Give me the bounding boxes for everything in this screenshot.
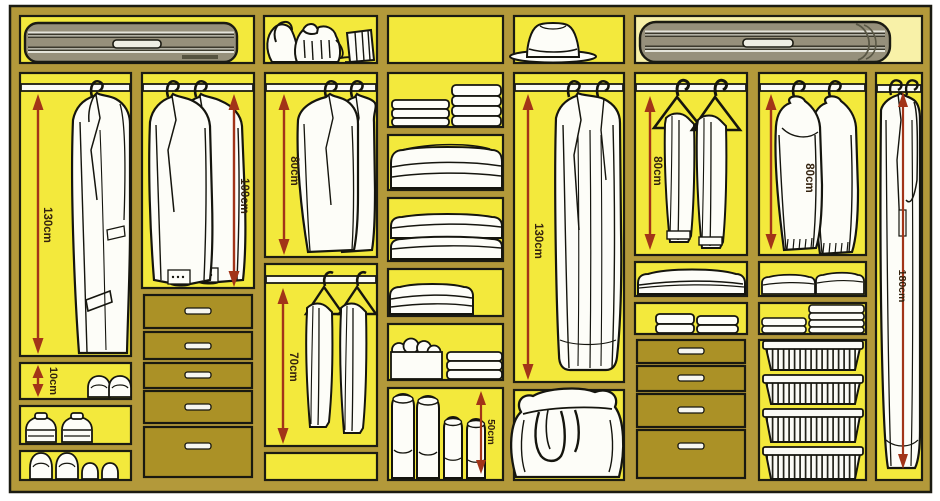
svg-text:70cm: 70cm [287, 352, 299, 381]
svg-text:130cm: 130cm [41, 207, 53, 243]
svg-text:10cm: 10cm [47, 367, 59, 395]
svg-text:130cm: 130cm [532, 223, 544, 259]
svg-text:80cm: 80cm [288, 156, 300, 185]
svg-text:100cm: 100cm [238, 178, 250, 214]
svg-text:50cm: 50cm [485, 419, 496, 445]
svg-text:80cm: 80cm [651, 156, 663, 185]
svg-text:80cm: 80cm [803, 163, 815, 192]
svg-text:180cm: 180cm [896, 270, 908, 303]
